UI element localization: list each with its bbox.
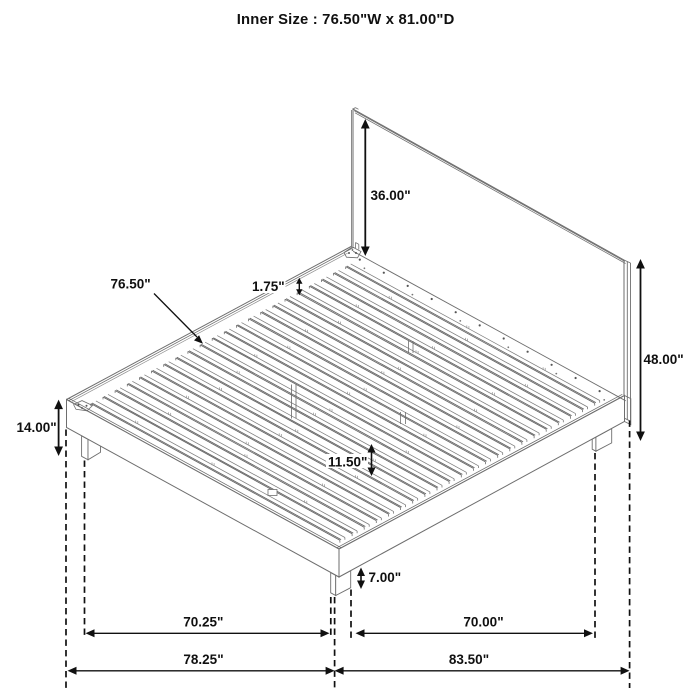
svg-text:76.50": 76.50"	[111, 276, 151, 291]
svg-text:14.00": 14.00"	[17, 420, 57, 435]
svg-text:7.00": 7.00"	[369, 570, 402, 585]
svg-text:70.25": 70.25"	[183, 615, 223, 630]
svg-text:78.25": 78.25"	[183, 652, 223, 667]
svg-text:1.75": 1.75"	[252, 279, 285, 294]
svg-text:48.00": 48.00"	[644, 352, 684, 367]
svg-text:11.50": 11.50"	[328, 455, 367, 470]
svg-text:36.00": 36.00"	[371, 188, 411, 203]
svg-text:70.00": 70.00"	[463, 615, 503, 630]
svg-text:Inner Size : 76.50"W x 81.00"D: Inner Size : 76.50"W x 81.00"D	[237, 12, 455, 28]
svg-text:83.50": 83.50"	[449, 652, 489, 667]
